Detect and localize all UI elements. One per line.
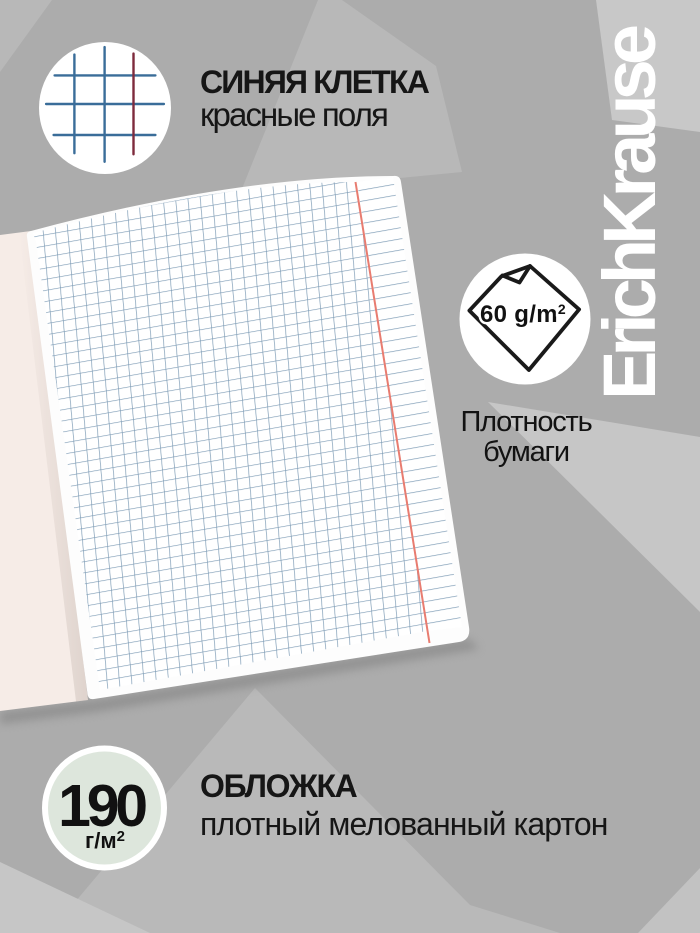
svg-text:плотный мелованный картон: плотный мелованный картон [200,806,608,842]
svg-text:красные поля: красные поля [200,96,387,133]
svg-text:бумаги: бумаги [483,436,569,468]
svg-text:ОБЛОЖКА: ОБЛОЖКА [200,768,358,804]
svg-text:ErichKrause: ErichKrause [588,26,671,400]
svg-text:Плотность: Плотность [460,406,591,438]
svg-text:60 g/m2: 60 g/m2 [480,301,566,328]
svg-text:СИНЯЯ КЛЕТКА: СИНЯЯ КЛЕТКА [200,64,430,100]
